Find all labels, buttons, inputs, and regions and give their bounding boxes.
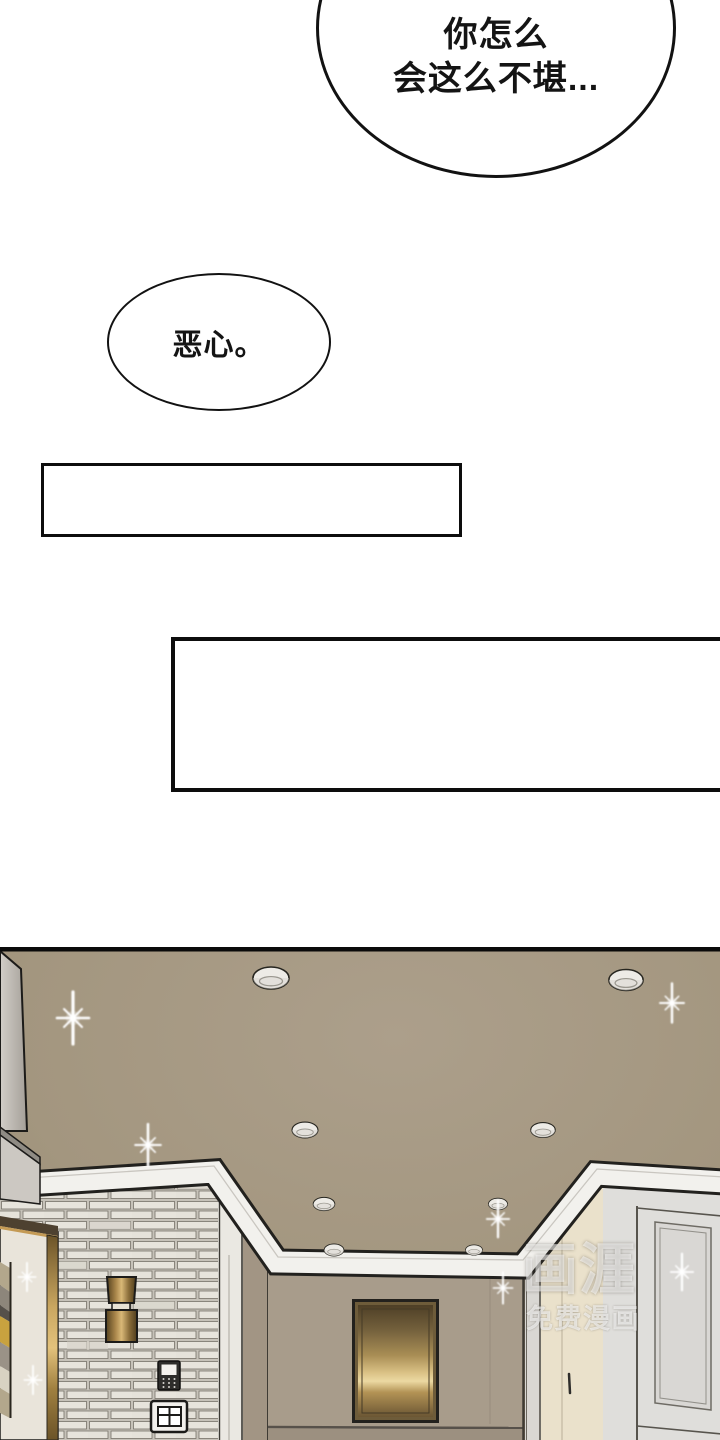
wall-panel-inset (655, 1222, 711, 1410)
speech-line: 恶心。 (173, 320, 266, 364)
frame-gold-strip (47, 1235, 58, 1440)
wall-sconce (106, 1277, 137, 1342)
intercom-keypad (158, 1361, 180, 1390)
floor-line (268, 1427, 523, 1428)
panel-top-border (0, 947, 720, 952)
paneled-wall (603, 1184, 720, 1440)
light-switch (151, 1401, 187, 1432)
artwork (0, 1262, 11, 1418)
ceiling-light (531, 1123, 555, 1138)
keypad-screen (162, 1365, 177, 1376)
floor-strip (268, 1429, 523, 1440)
ceiling-light (609, 970, 643, 991)
speech-line: 你怎么 (319, 13, 673, 57)
caption-box-1 (41, 463, 462, 537)
speech-bubble-small: 恶心。 (107, 273, 331, 411)
picture-frame (0, 1216, 58, 1440)
door-handle (569, 1374, 570, 1393)
ceiling-light (313, 1197, 335, 1210)
speech-bubble-top-text: 你怎么 会这么不堪... (319, 13, 673, 101)
ceiling-light (292, 1122, 318, 1138)
gold-panel (352, 1299, 439, 1423)
ceiling-light (466, 1245, 483, 1255)
comic-page: 你怎么 会这么不堪... 恶心。 画涯 免费漫画 (0, 0, 720, 1440)
ceiling-light (324, 1244, 344, 1256)
ceiling-light (253, 967, 289, 989)
speech-line: 会这么不堪... (319, 57, 673, 101)
caption-box-2 (171, 637, 720, 792)
